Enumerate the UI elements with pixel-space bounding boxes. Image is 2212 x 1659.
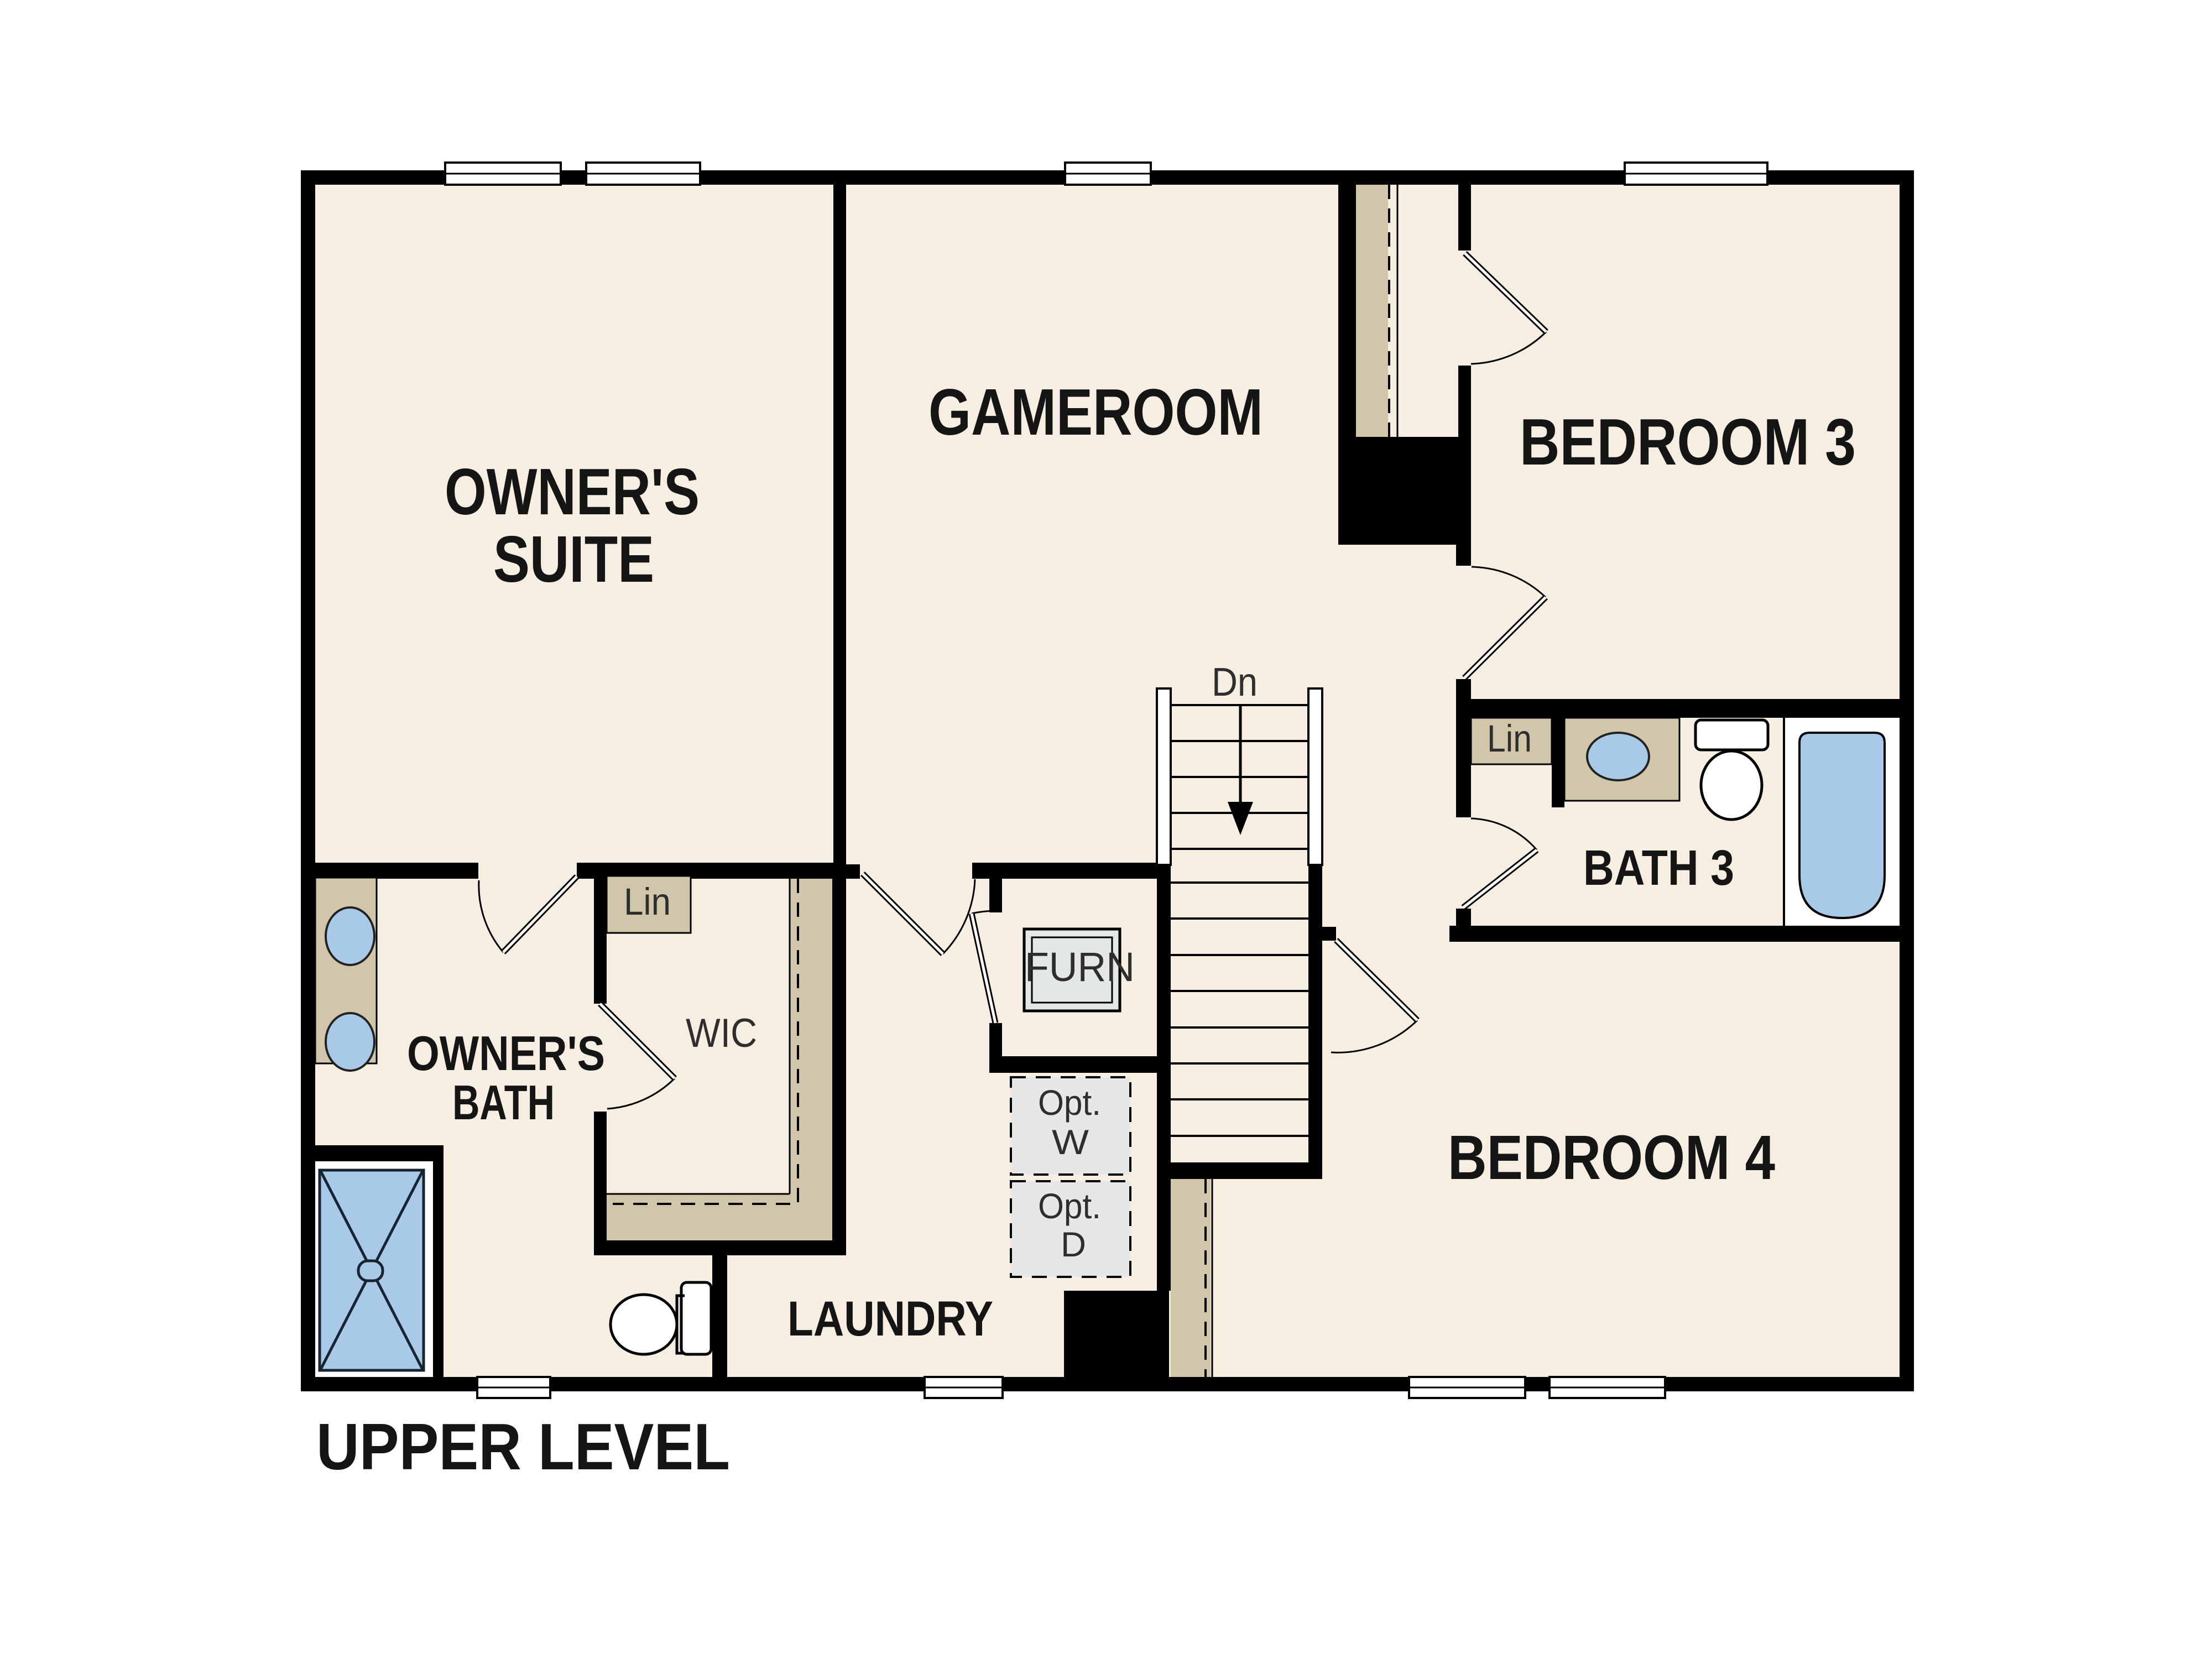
svg-text:OWNER'S: OWNER'S <box>445 455 700 529</box>
svg-text:Opt.: Opt. <box>1038 1083 1101 1123</box>
svg-text:Opt.: Opt. <box>1038 1186 1101 1226</box>
svg-text:W: W <box>1052 1123 1089 1162</box>
svg-text:Lin: Lin <box>1487 717 1532 760</box>
svg-text:SUITE: SUITE <box>493 523 654 596</box>
svg-text:Dn: Dn <box>1212 660 1258 705</box>
svg-text:LAUNDRY: LAUNDRY <box>787 1291 993 1346</box>
svg-text:FURN: FURN <box>1025 944 1135 990</box>
svg-text:BEDROOM 4: BEDROOM 4 <box>1448 1123 1775 1192</box>
svg-text:BEDROOM 3: BEDROOM 3 <box>1520 405 1856 479</box>
svg-text:GAMEROOM: GAMEROOM <box>928 375 1263 449</box>
svg-text:UPPER LEVEL: UPPER LEVEL <box>316 1410 730 1484</box>
svg-text:Lin: Lin <box>624 880 671 923</box>
svg-text:BATH 3: BATH 3 <box>1583 841 1734 896</box>
svg-text:D: D <box>1061 1225 1086 1264</box>
svg-text:WIC: WIC <box>686 1011 757 1056</box>
svg-text:OWNER'S: OWNER'S <box>407 1026 605 1081</box>
svg-text:BATH: BATH <box>452 1075 555 1130</box>
